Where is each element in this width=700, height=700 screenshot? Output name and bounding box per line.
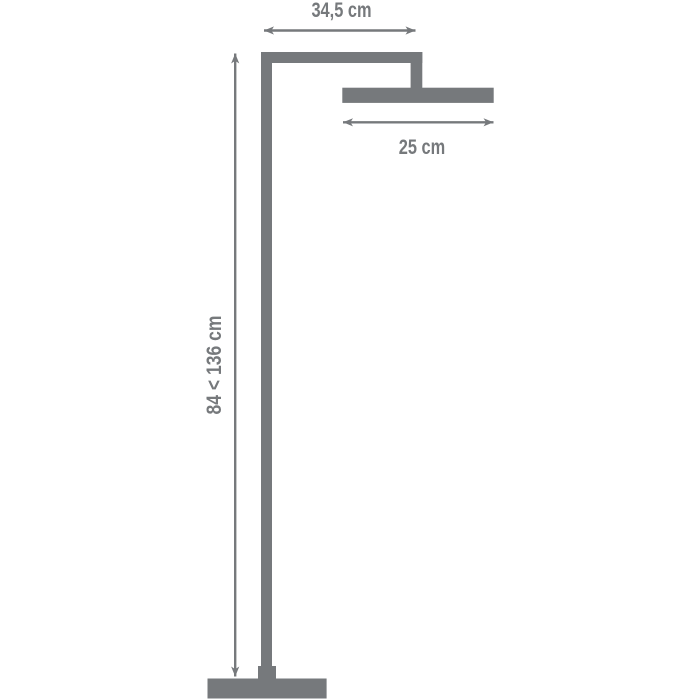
svg-text:25 cm: 25 cm [399,135,445,158]
svg-text:34,5 cm: 34,5 cm [311,0,371,22]
svg-text:84 < 136 cm: 84 < 136 cm [203,316,227,415]
